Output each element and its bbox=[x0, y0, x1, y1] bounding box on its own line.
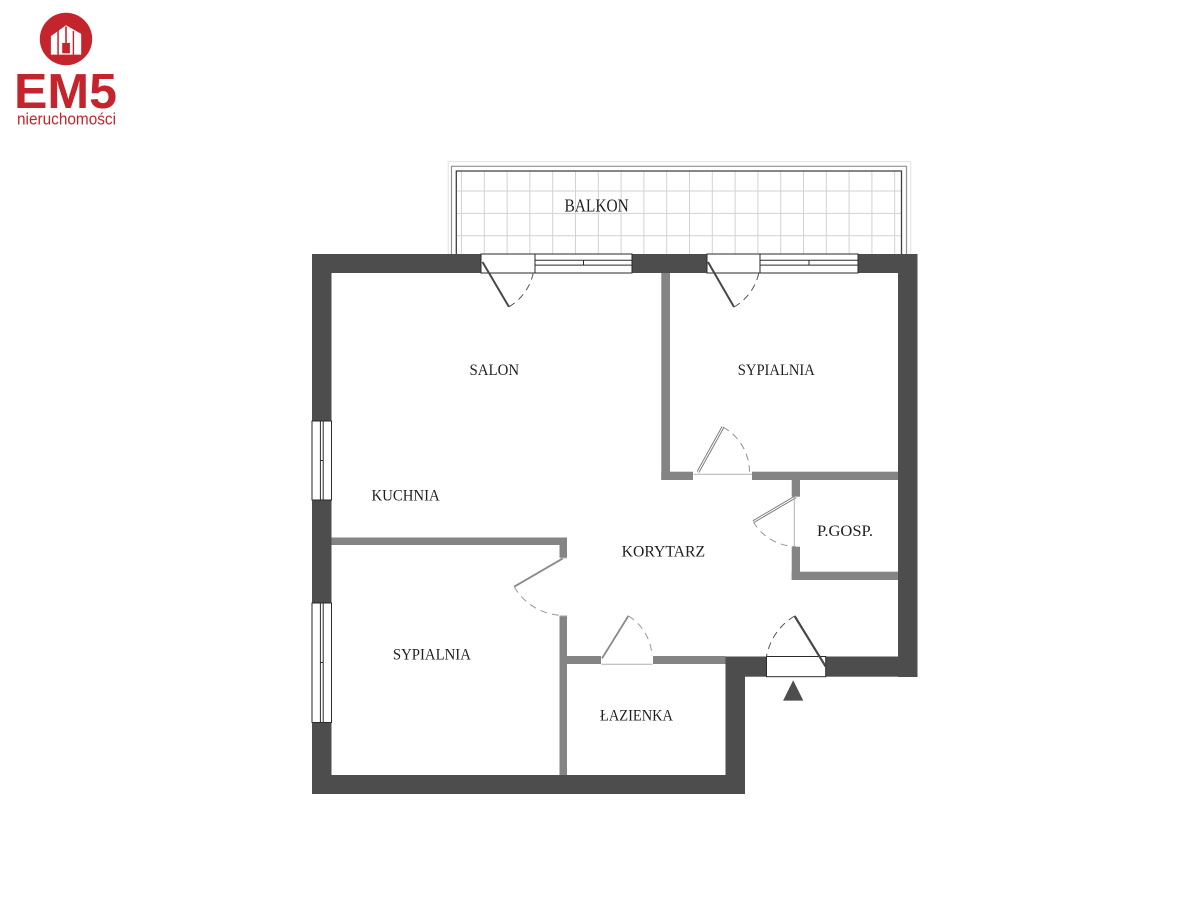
svg-text:SYPIALNIA: SYPIALNIA bbox=[393, 645, 471, 663]
svg-text:KUCHNIA: KUCHNIA bbox=[371, 487, 440, 505]
svg-text:BALKON: BALKON bbox=[565, 196, 630, 216]
svg-text:SYPIALNIA: SYPIALNIA bbox=[738, 361, 815, 379]
svg-text:nieruchomości: nieruchomości bbox=[17, 110, 116, 129]
svg-text:SALON: SALON bbox=[470, 361, 520, 379]
svg-text:ŁAZIENKA: ŁAZIENKA bbox=[600, 707, 673, 725]
svg-text:P.GOSP.: P.GOSP. bbox=[817, 522, 873, 540]
svg-text:KORYTARZ: KORYTARZ bbox=[622, 543, 706, 561]
